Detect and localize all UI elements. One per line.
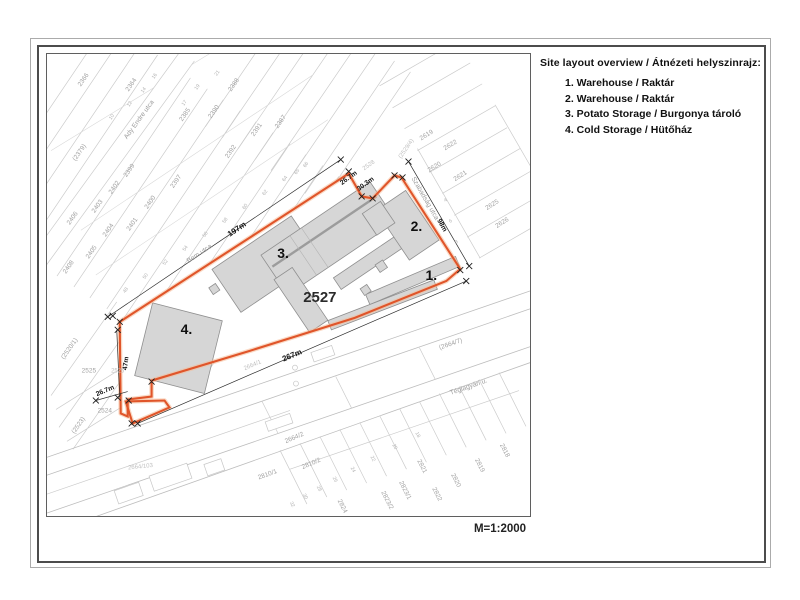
legend-item-1: 1. Warehouse / Raktár [565, 76, 766, 92]
parcel-label-2400: 2400 [143, 194, 157, 210]
parcel-label-2405: 2405 [85, 244, 99, 260]
dim-label-267m: 267m [281, 347, 303, 363]
house-label-4: 4 [443, 197, 449, 204]
house-label-66: 66 [302, 161, 310, 169]
house-label-10: 10 [108, 113, 116, 121]
building-label-2: 2. [411, 218, 423, 234]
parcel-label-2810-2: 2810/2 [301, 457, 322, 471]
house-label-22: 22 [369, 455, 377, 463]
site-label-2527: 2527 [303, 289, 336, 306]
parcel-label-2818: 2818 [498, 443, 511, 459]
parcel-label-2366: 2366 [77, 72, 91, 88]
house-label-16: 16 [151, 72, 159, 80]
parcel-label-2391: 2391 [250, 122, 264, 138]
parcel-label-2622: 2622 [443, 138, 459, 152]
building-label-4: 4. [181, 321, 193, 337]
parcel-label-2387: 2387 [274, 114, 288, 130]
legend-item-4: 4. Cold Storage / Hütőház [565, 123, 766, 139]
house-label-26: 26 [331, 476, 339, 484]
house-label-14: 14 [140, 86, 148, 94]
parcel-label-2408: 2408 [62, 259, 76, 275]
house-label-58: 58 [221, 217, 229, 225]
faint-label-2526: 2526 [111, 369, 125, 375]
parcel-label-2625: 2625 [484, 198, 500, 212]
parcel-label-2404: 2404 [102, 222, 116, 238]
house-label-60: 60 [241, 203, 249, 211]
parcel-label-2402: 2402 [108, 179, 122, 195]
house-label-18: 18 [413, 431, 421, 439]
scale-label: M=1:2000 [446, 523, 554, 535]
parcel-label-2399: 2399 [122, 162, 136, 178]
parcel-label-2822: 2822 [430, 486, 443, 502]
parcel-label-2626: 2626 [494, 216, 510, 230]
parcel-label-2520-1: (2520/1) [60, 337, 80, 361]
legend-item-2: 2. Warehouse / Raktár [565, 92, 766, 108]
parcel-label-2823-1: 2823/1 [397, 480, 412, 501]
house-label-21: 21 [213, 69, 221, 77]
parcel-label-2620: 2620 [427, 160, 443, 174]
house-label-12: 12 [126, 100, 134, 108]
parcel-label-2525: 2525 [82, 368, 97, 375]
house-label-24: 24 [349, 466, 357, 474]
parcel-label-2823-2: 2823/2 [379, 490, 394, 511]
parcel-label-2619: 2619 [419, 128, 435, 142]
parcel-label-2819: 2819 [473, 458, 486, 474]
parcel-label-2401: 2401 [125, 216, 139, 232]
parcel-label-2388: 2388 [227, 77, 241, 93]
house-label-65: 65 [293, 168, 301, 176]
map-frame: 197m267m26.7m30.3m98m47m26.7mBem utcaAdy… [46, 53, 531, 517]
house-label-48: 48 [122, 286, 130, 294]
legend-item-3: 3. Potato Storage / Burgonya tároló [565, 107, 766, 123]
site-plan-drawing: 197m267m26.7m30.3m98m47m26.7mBem utcaAdy… [47, 54, 530, 516]
parcel-label-2820: 2820 [449, 472, 462, 488]
parcel-label-2621: 2621 [453, 169, 469, 183]
house-label-62: 62 [261, 189, 269, 197]
house-label-8: 8 [454, 239, 460, 246]
parcel-label-2379: (2379) [71, 143, 87, 162]
faint-label-2529-4: (2529/4) [398, 138, 416, 160]
faint-label-2664-103: 2664/103 [128, 463, 154, 472]
house-label-30: 30 [301, 493, 309, 501]
house-label-6: 6 [448, 218, 454, 225]
house-label-19: 19 [194, 83, 202, 91]
legend-title: Site layout overview / Átnézeti helyszin… [540, 57, 766, 69]
house-label-20: 20 [391, 443, 399, 451]
faint-label-2528: 2528 [362, 159, 377, 172]
building-label-1: 1. [426, 267, 438, 283]
parcel-label-2524: 2524 [98, 407, 113, 414]
parcel-label-2824: 2824 [336, 498, 349, 514]
building-label-3: 3. [277, 245, 289, 261]
parcel-label-2364: 2364 [124, 77, 138, 93]
parcel-label-2821: 2821 [415, 459, 428, 475]
house-label-50: 50 [142, 272, 150, 280]
parcel-label-2397: 2397 [169, 173, 183, 189]
house-label-17: 17 [181, 99, 189, 107]
legend: Site layout overview / Átnézeti helyszin… [540, 57, 766, 138]
house-label-54: 54 [182, 244, 190, 252]
dim-label-197m: 197m [226, 220, 248, 239]
house-label-32: 32 [288, 501, 296, 509]
parcel-label-2664-2: 2664/2 [284, 431, 305, 445]
parcel-label-2810-1: 2810/1 [257, 468, 278, 481]
